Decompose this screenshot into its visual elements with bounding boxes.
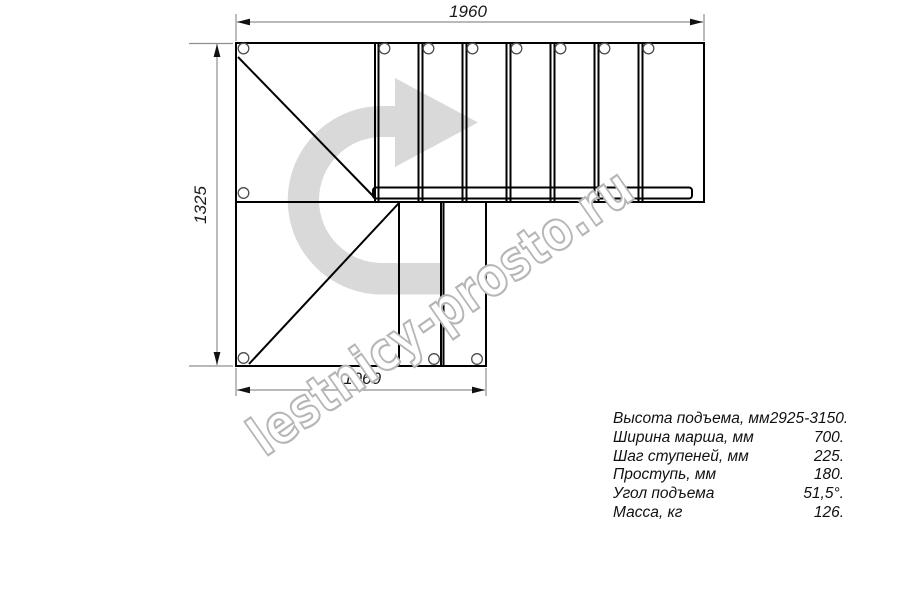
spec-row: Шаг ступеней, мм 225.	[613, 448, 844, 467]
tread	[511, 43, 551, 202]
bolt-hole-icon	[472, 354, 483, 365]
bolt-hole-icon	[467, 43, 478, 54]
spec-label: Шаг ступеней, мм	[613, 448, 749, 467]
bolt-hole-icon	[379, 43, 390, 54]
bolt-hole-icon	[238, 43, 249, 54]
spec-value: 180.	[814, 466, 844, 485]
spec-label: Ширина марша, мм	[613, 429, 754, 448]
stringer-beam	[373, 188, 692, 199]
bolt-hole-icon	[238, 188, 249, 199]
bolt-hole-icon	[643, 43, 654, 54]
spec-label: Масса, кг	[613, 504, 682, 523]
spec-value: 225.	[814, 448, 844, 467]
spec-label: Проступь, мм	[613, 466, 716, 485]
spec-row: Угол подъема 51,5°.	[613, 485, 844, 504]
spec-value: 51,5°.	[803, 485, 844, 504]
tread-top-platform	[643, 43, 705, 202]
bolt-hole-icon	[555, 43, 566, 54]
bolt-hole-icon	[423, 43, 434, 54]
turn-direction-arrow-icon	[288, 78, 478, 295]
spec-label: Угол подъема	[613, 485, 714, 504]
bolt-hole-icon	[599, 43, 610, 54]
spec-row: Проступь, мм 180.	[613, 466, 844, 485]
bolt-hole-icon	[238, 353, 249, 364]
dimension-label-left: 1325	[191, 186, 210, 224]
bolt-hole-icon	[511, 43, 522, 54]
spec-row: Ширина марша, мм 700.	[613, 429, 844, 448]
spec-row: Масса, кг 126.	[613, 504, 844, 523]
spec-label: Высота подъема, мм	[613, 410, 770, 429]
spec-table: Высота подъема, мм 2925-3150. Ширина мар…	[613, 410, 844, 523]
spec-value: 126.	[814, 504, 844, 523]
spec-value: 2925-3150.	[770, 410, 848, 429]
dimension-label-top: 1960	[449, 2, 487, 21]
staircase-drawing-page: 1960 1325 1060 lestnicy-prosto.ru Высота…	[0, 0, 900, 600]
spec-value: 700.	[814, 429, 844, 448]
spec-row: Высота подъема, мм 2925-3150.	[613, 410, 844, 429]
